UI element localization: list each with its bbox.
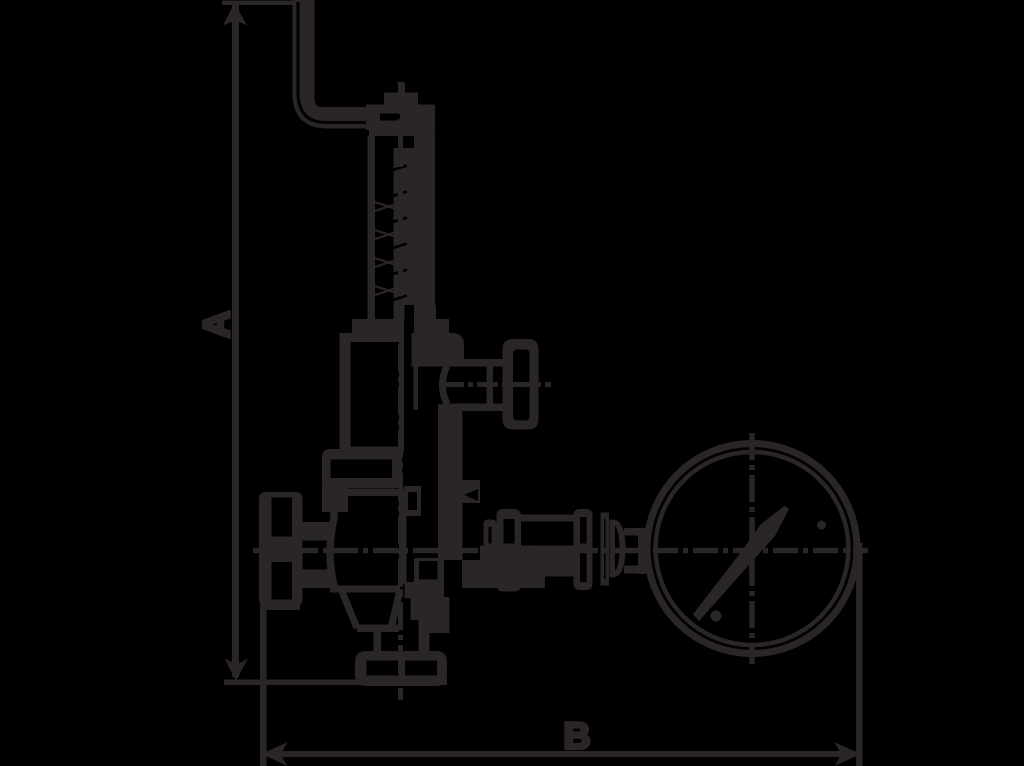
svg-text:A: A [195,311,237,338]
svg-text:B: B [564,715,591,757]
